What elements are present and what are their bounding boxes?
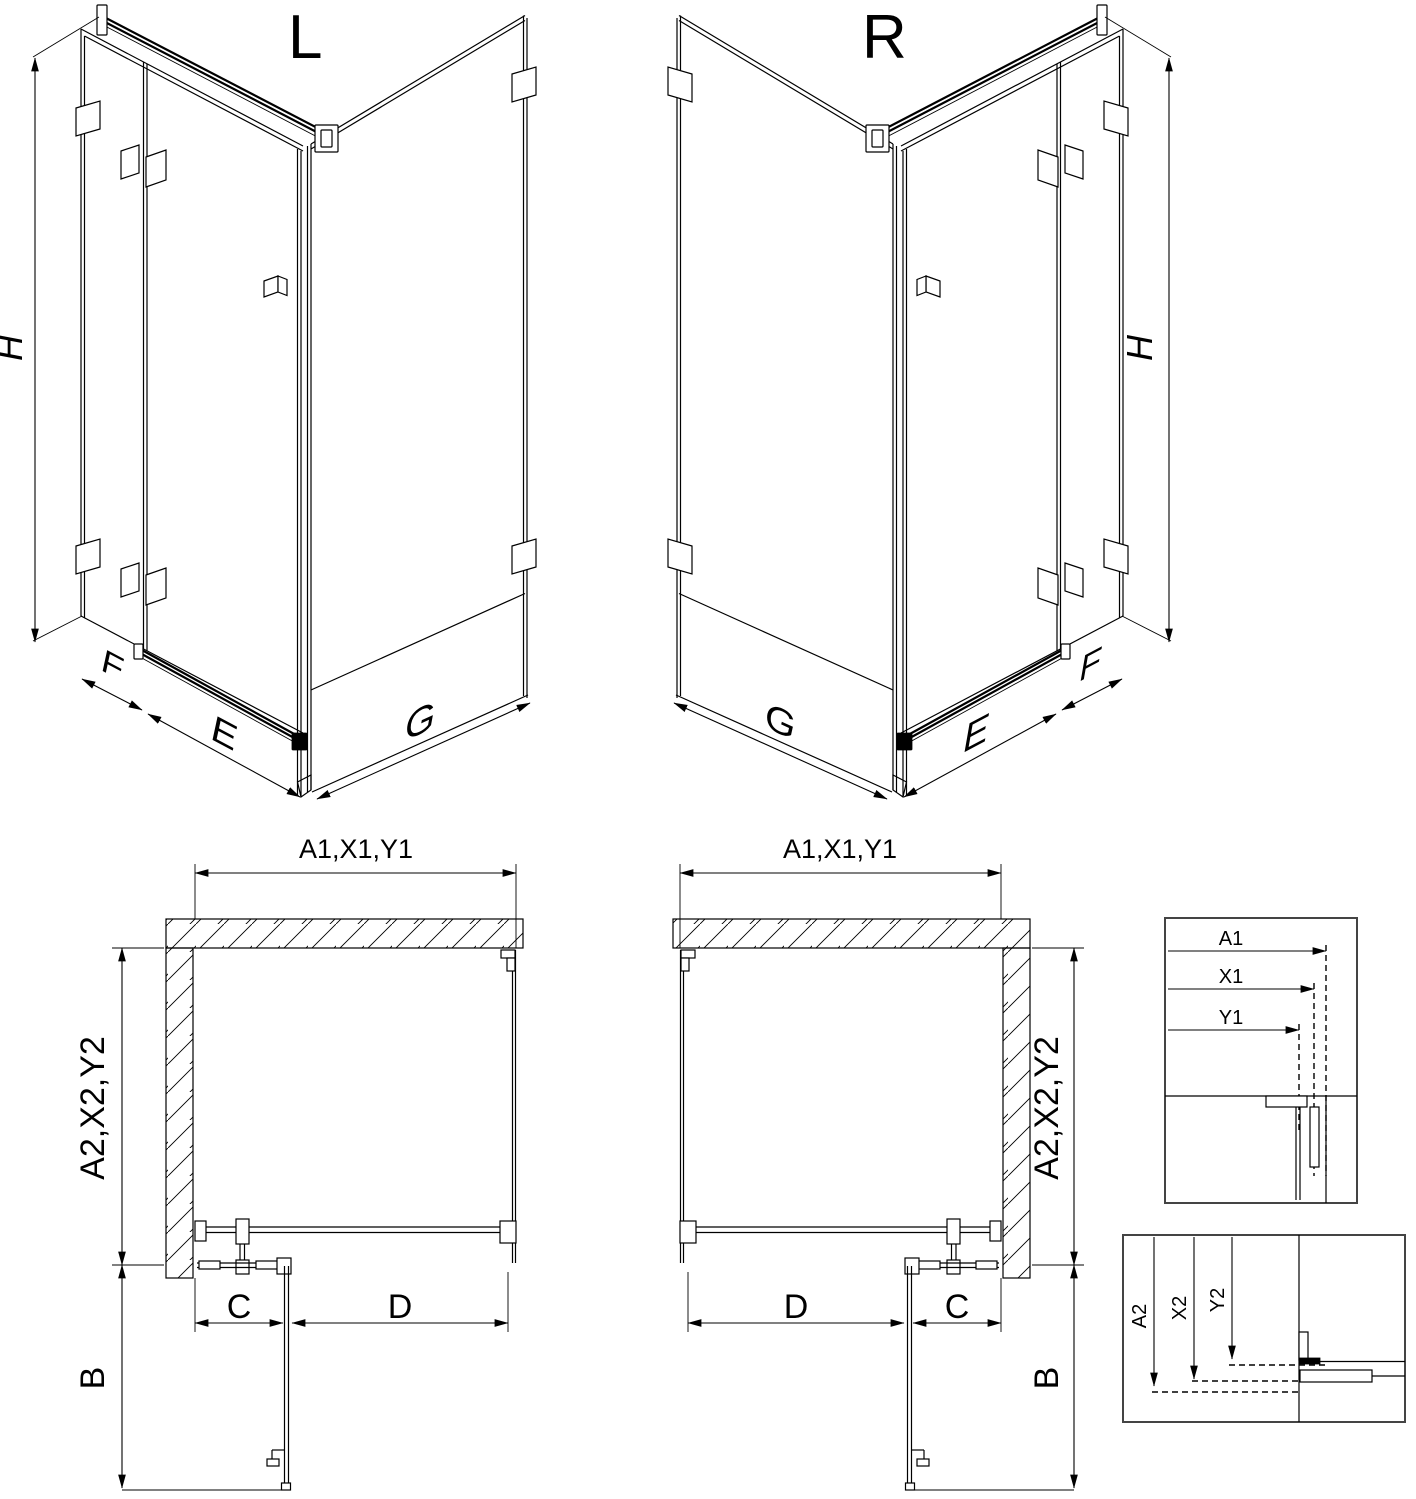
dim-label-side-left: G <box>405 694 435 749</box>
plan-right-depth-label: A2,X2,Y2 <box>1028 1036 1066 1180</box>
wall-side-right-plan <box>1003 948 1030 1278</box>
plan-view-right: A1,X1,Y1 A2,X2,Y2 C D B <box>673 834 1084 1490</box>
detail-width-diagram: A1 X1 Y1 <box>1165 918 1357 1203</box>
detail-width-y1: Y1 <box>1219 1007 1243 1029</box>
detail-depth-x2: X2 <box>1169 1296 1191 1320</box>
iso-view-right: R H F E G <box>668 3 1171 799</box>
dim-label-fixed-right: F <box>1080 639 1102 689</box>
plan-view-left: A1,X1,Y1 A2,X2,Y2 C D B <box>74 834 523 1490</box>
wall-top-left-plan <box>166 919 523 948</box>
wall-top-right-plan <box>673 919 1030 948</box>
plan-right-swing-label: B <box>1028 1367 1066 1390</box>
plan-left-width-label: A1,X1,Y1 <box>299 834 413 864</box>
plan-right-fixed-label: C <box>945 1288 970 1326</box>
iso-view-left: L H F E G <box>0 3 536 799</box>
technical-drawing-page: L H F E G R H F E G A1,X1,Y1 A2,X2,Y2 C … <box>0 0 1416 1499</box>
technical-drawing: L H F E G R H F E G A1,X1,Y1 A2,X2,Y2 C … <box>0 0 1416 1499</box>
dim-label-height-left: H <box>0 334 30 361</box>
dim-label-door-left: E <box>211 705 237 762</box>
view-right-label: R <box>862 3 907 72</box>
view-left-label: L <box>288 3 322 72</box>
detail-depth-diagram: A2 X2 Y2 <box>1123 1235 1405 1422</box>
detail-depth-a2: A2 <box>1129 1304 1151 1328</box>
dim-label-fixed-left: F <box>102 640 124 690</box>
dim-label-side-right: G <box>765 694 795 749</box>
plan-left-depth-label: A2,X2,Y2 <box>74 1036 112 1180</box>
plan-left-swing-label: B <box>74 1367 112 1390</box>
wall-side-left-plan <box>166 948 193 1278</box>
detail-width-a1: A1 <box>1219 928 1243 950</box>
detail-depth-y2: Y2 <box>1207 1288 1229 1312</box>
dim-label-height-right: H <box>1119 334 1160 361</box>
plan-right-width-label: A1,X1,Y1 <box>783 834 897 864</box>
plan-left-door-label: D <box>388 1288 413 1326</box>
plan-left-fixed-label: C <box>227 1288 252 1326</box>
detail-width-x1: X1 <box>1219 966 1243 988</box>
plan-right-door-label: D <box>784 1288 809 1326</box>
